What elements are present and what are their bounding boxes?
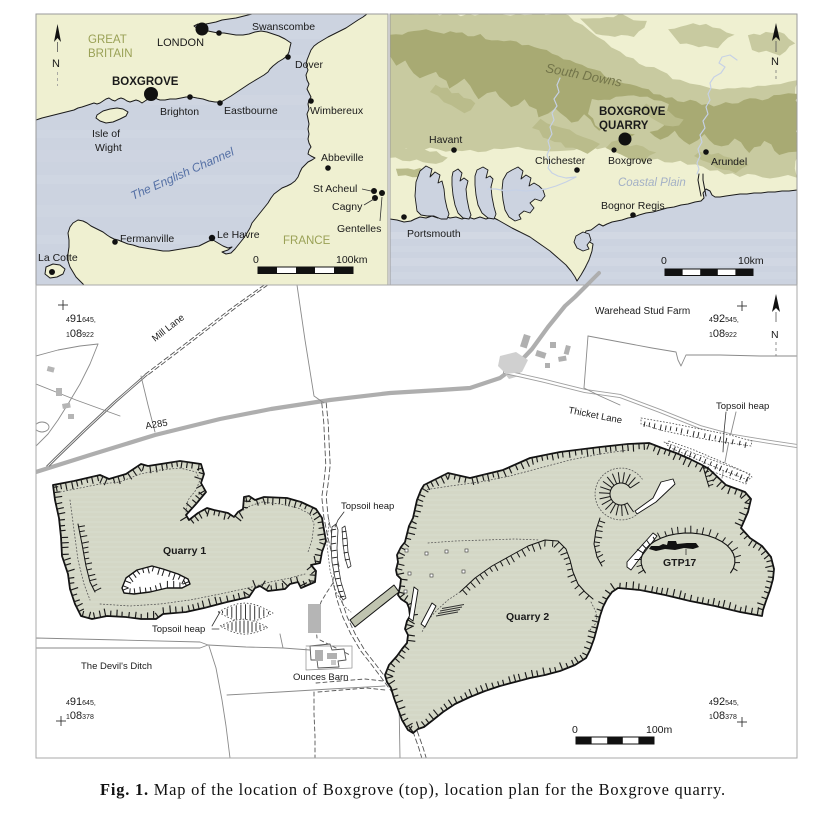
svg-text:100m: 100m xyxy=(646,724,673,736)
svg-text:GTP17: GTP17 xyxy=(663,557,696,569)
svg-text:10km: 10km xyxy=(738,255,764,267)
svg-text:La Cotte: La Cotte xyxy=(38,252,78,264)
svg-text:Havant: Havant xyxy=(429,134,462,146)
svg-text:FRANCE: FRANCE xyxy=(283,235,331,247)
svg-text:N: N xyxy=(52,58,60,70)
svg-text:St Acheul: St Acheul xyxy=(313,183,357,195)
svg-text:Quarry 2: Quarry 2 xyxy=(506,611,549,623)
svg-text:Abbeville: Abbeville xyxy=(321,152,364,164)
svg-text:Chichester: Chichester xyxy=(535,155,586,167)
svg-text:N: N xyxy=(771,329,779,341)
svg-text:BOXGROVE: BOXGROVE xyxy=(112,76,179,88)
svg-text:Swanscombe: Swanscombe xyxy=(252,21,315,33)
svg-text:100km: 100km xyxy=(336,254,368,266)
svg-text:Portsmouth: Portsmouth xyxy=(407,228,461,240)
svg-text:BOXGROVE: BOXGROVE xyxy=(599,106,666,118)
svg-text:0: 0 xyxy=(253,254,259,266)
svg-text:Isle of: Isle of xyxy=(92,128,120,140)
svg-text:Fermanville: Fermanville xyxy=(120,233,174,245)
svg-text:Cagny: Cagny xyxy=(332,201,363,213)
svg-text:Coastal Plain: Coastal Plain xyxy=(618,177,686,189)
svg-text:Warehead Stud Farm: Warehead Stud Farm xyxy=(595,306,690,317)
svg-text:Dover: Dover xyxy=(295,59,324,71)
svg-text:Arundel: Arundel xyxy=(711,156,747,168)
svg-text:BRITAIN: BRITAIN xyxy=(88,48,133,60)
svg-text:The Devil's Ditch: The Devil's Ditch xyxy=(81,661,152,672)
svg-text:Wimbereux: Wimbereux xyxy=(310,105,364,117)
svg-text:Topsoil heap: Topsoil heap xyxy=(716,401,769,412)
svg-text:Gentelles: Gentelles xyxy=(337,223,381,235)
svg-text:0: 0 xyxy=(661,255,667,267)
svg-text:0: 0 xyxy=(572,724,578,736)
svg-text:LONDON: LONDON xyxy=(157,37,204,49)
svg-text:Fig. 1. Map of the location of: Fig. 1. Map of the location of Boxgrove … xyxy=(100,780,726,799)
svg-text:Topsoil heap: Topsoil heap xyxy=(341,501,394,512)
svg-text:Le Havre: Le Havre xyxy=(217,229,260,241)
svg-text:Bognor Regis: Bognor Regis xyxy=(601,200,665,212)
svg-text:Quarry 1: Quarry 1 xyxy=(163,545,206,557)
svg-text:Eastbourne: Eastbourne xyxy=(224,105,278,117)
svg-text:Ounces Barn: Ounces Barn xyxy=(293,672,348,683)
svg-text:Topsoil heap: Topsoil heap xyxy=(152,624,205,635)
svg-text:QUARRY: QUARRY xyxy=(599,120,649,132)
svg-text:Brighton: Brighton xyxy=(160,106,199,118)
svg-text:Boxgrove: Boxgrove xyxy=(608,155,653,167)
svg-text:Wight: Wight xyxy=(95,142,122,154)
svg-text:N: N xyxy=(771,56,779,68)
svg-text:GREAT: GREAT xyxy=(88,34,127,46)
